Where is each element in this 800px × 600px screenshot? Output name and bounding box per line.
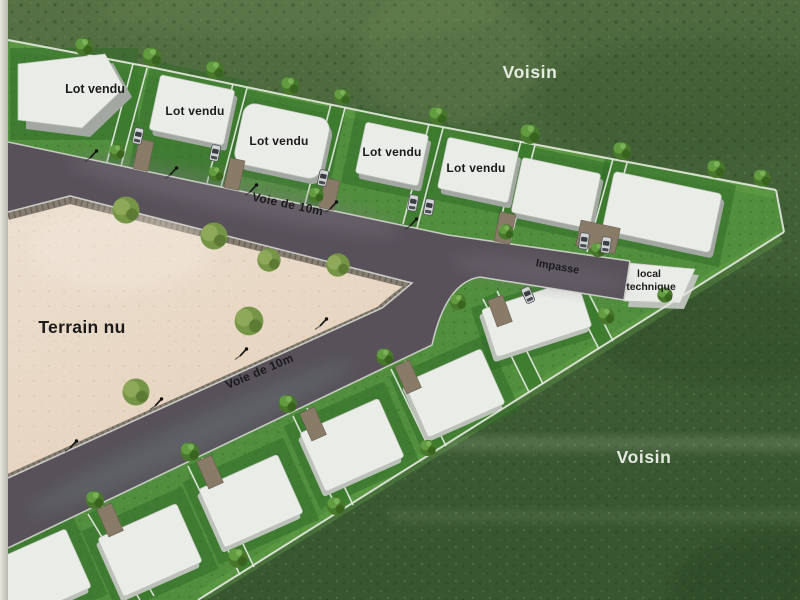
site-plan-rendering: Voisin Voisin Lot vendu Lot vendu Lot ve… xyxy=(0,0,800,600)
photo-left-margin xyxy=(0,0,8,600)
site-plan-photo: Voisin Voisin Lot vendu Lot vendu Lot ve… xyxy=(0,0,800,600)
photo-grain xyxy=(0,0,800,600)
